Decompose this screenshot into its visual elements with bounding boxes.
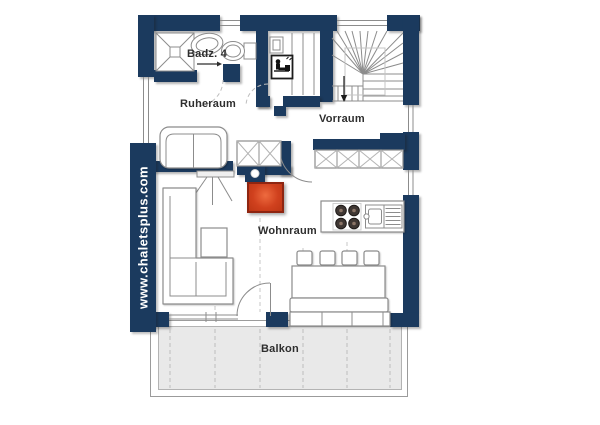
kitchen-counter bbox=[321, 201, 404, 232]
glass-front bbox=[169, 312, 238, 322]
bench-icon bbox=[290, 298, 388, 312]
balcony-door-icon bbox=[237, 283, 271, 316]
winder-stairs-icon bbox=[332, 31, 403, 101]
kitchen-sink-icon bbox=[364, 205, 402, 228]
sauna-icon bbox=[272, 56, 293, 79]
sauna-heater-icon bbox=[270, 37, 283, 53]
wardrobe-icon bbox=[315, 150, 403, 168]
chimney-icon bbox=[251, 170, 259, 178]
chair-icon bbox=[364, 251, 379, 265]
loveseat-sofa-icon bbox=[160, 127, 227, 168]
room-label-bathroom: Badz. 4 bbox=[187, 48, 227, 60]
balcony-deck-dashed-lines bbox=[170, 329, 390, 388]
hall-door-swing-icon bbox=[280, 150, 312, 182]
sauna-door-swing-icon bbox=[246, 84, 268, 106]
room-label-hall: Vorraum bbox=[319, 113, 365, 125]
wardrobe-icon bbox=[237, 141, 281, 166]
chair-icon bbox=[342, 251, 357, 265]
side-table-icon bbox=[201, 228, 227, 257]
dining-set bbox=[290, 251, 390, 326]
chair-icon bbox=[297, 251, 312, 265]
room-label-living: Wohnraum bbox=[258, 225, 317, 237]
bathroom-label-arrow-icon bbox=[197, 62, 222, 67]
chair-icon bbox=[320, 251, 335, 265]
sauna-bench-slats bbox=[292, 33, 314, 95]
floorplan-linework bbox=[0, 0, 600, 425]
room-label-balcony: Balkon bbox=[261, 343, 299, 355]
floorplan-canvas: www.chaletsplus.com bbox=[0, 0, 600, 425]
dining-table-icon bbox=[292, 266, 385, 298]
window-bench bbox=[290, 312, 390, 326]
stairs-down-arrow-icon bbox=[341, 76, 347, 102]
room-label-resting: Ruheraum bbox=[180, 98, 236, 110]
